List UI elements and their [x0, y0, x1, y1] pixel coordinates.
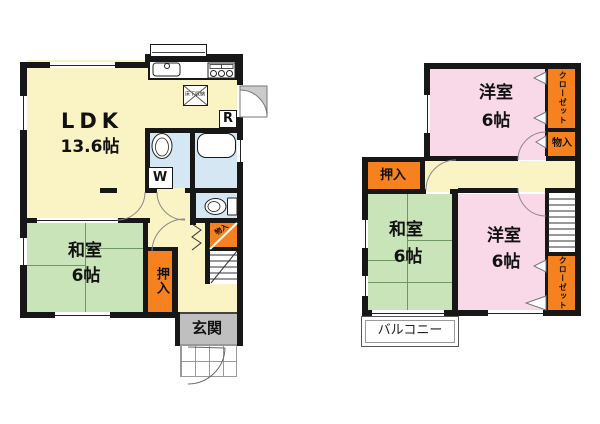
door-arc — [152, 219, 185, 252]
symbols-overlay — [0, 0, 600, 424]
closet-door-marks — [526, 72, 546, 310]
folding-door — [192, 224, 201, 250]
stairs-steps-1f — [210, 251, 238, 283]
door-arc — [426, 160, 456, 190]
floor-plan-canvas: 床下収納 R W LDK 13.6帖 和室 6帖 押入 玄関 物入 — [0, 0, 600, 424]
door-arc — [157, 192, 185, 220]
sink-icon — [153, 63, 180, 76]
door-arc — [518, 188, 546, 216]
washbasin-icon — [152, 134, 172, 159]
stairs-steps-2f — [548, 199, 576, 247]
storage-diagonal — [210, 223, 237, 249]
door-leaf — [188, 347, 225, 348]
door-arc — [117, 192, 145, 220]
door-arc — [188, 348, 225, 384]
toilet-tank — [228, 198, 238, 215]
